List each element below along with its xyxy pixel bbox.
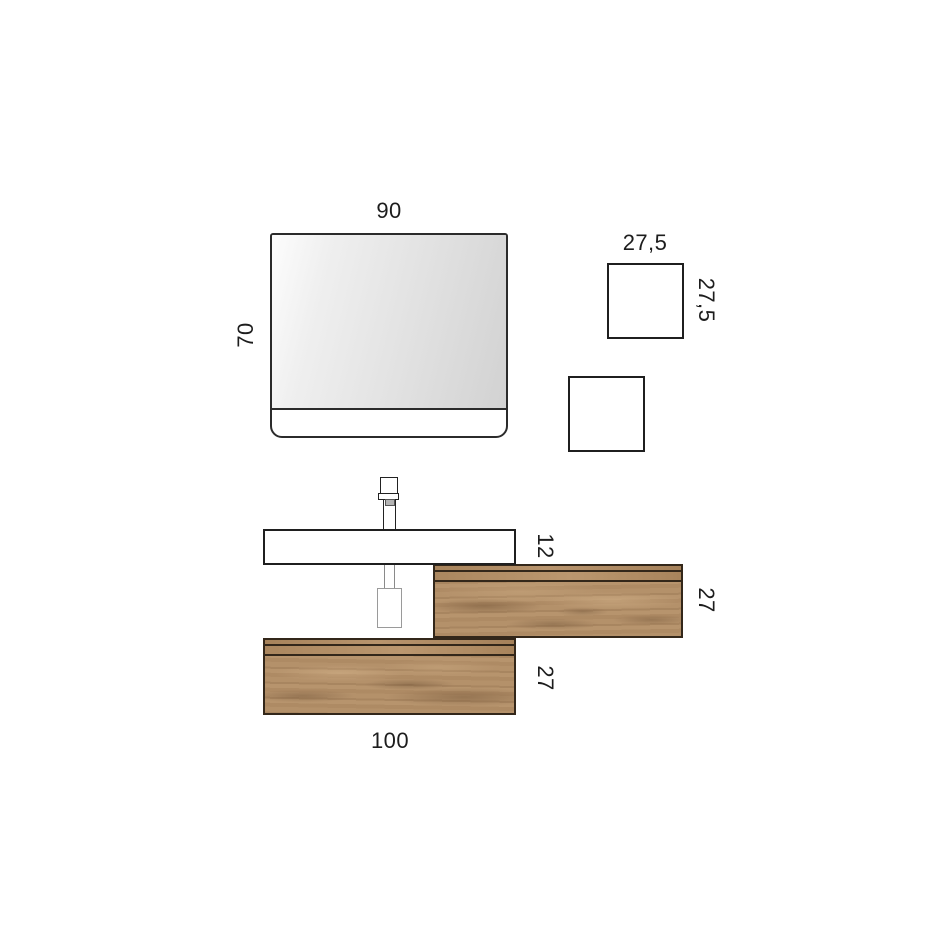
dimension-mirror-height: 70 [233,322,259,347]
wall-cabinet-right [433,564,683,638]
cabinet-front-panel [435,582,681,636]
washbasin-top [263,529,516,565]
storage-box-upper [607,263,684,339]
cabinet-front-panel [265,656,514,713]
dimension-left-cabinet-height: 27 [532,665,558,690]
faucet-handle [380,477,398,494]
cabinet-handle-band [265,646,514,654]
mirror-glass [272,235,506,410]
dimension-square-width: 27,5 [623,230,667,256]
dimension-basin-height: 12 [532,533,558,558]
siphon [377,588,402,628]
dimension-square-height: 27,5 [693,278,719,322]
dimension-left-cabinet-width: 100 [371,728,409,754]
storage-box-lower [568,376,645,452]
mirror [270,233,508,438]
faucet-nozzle [385,499,395,506]
dimension-right-cabinet-height: 27 [693,587,719,612]
cabinet-handle-band [435,572,681,580]
dimension-mirror-width: 90 [376,198,401,224]
drain-pipe [384,564,395,589]
base-cabinet-left [263,638,516,715]
technical-drawing-canvas: 90 70 27,5 27,5 12 27 27 100 [0,0,950,950]
